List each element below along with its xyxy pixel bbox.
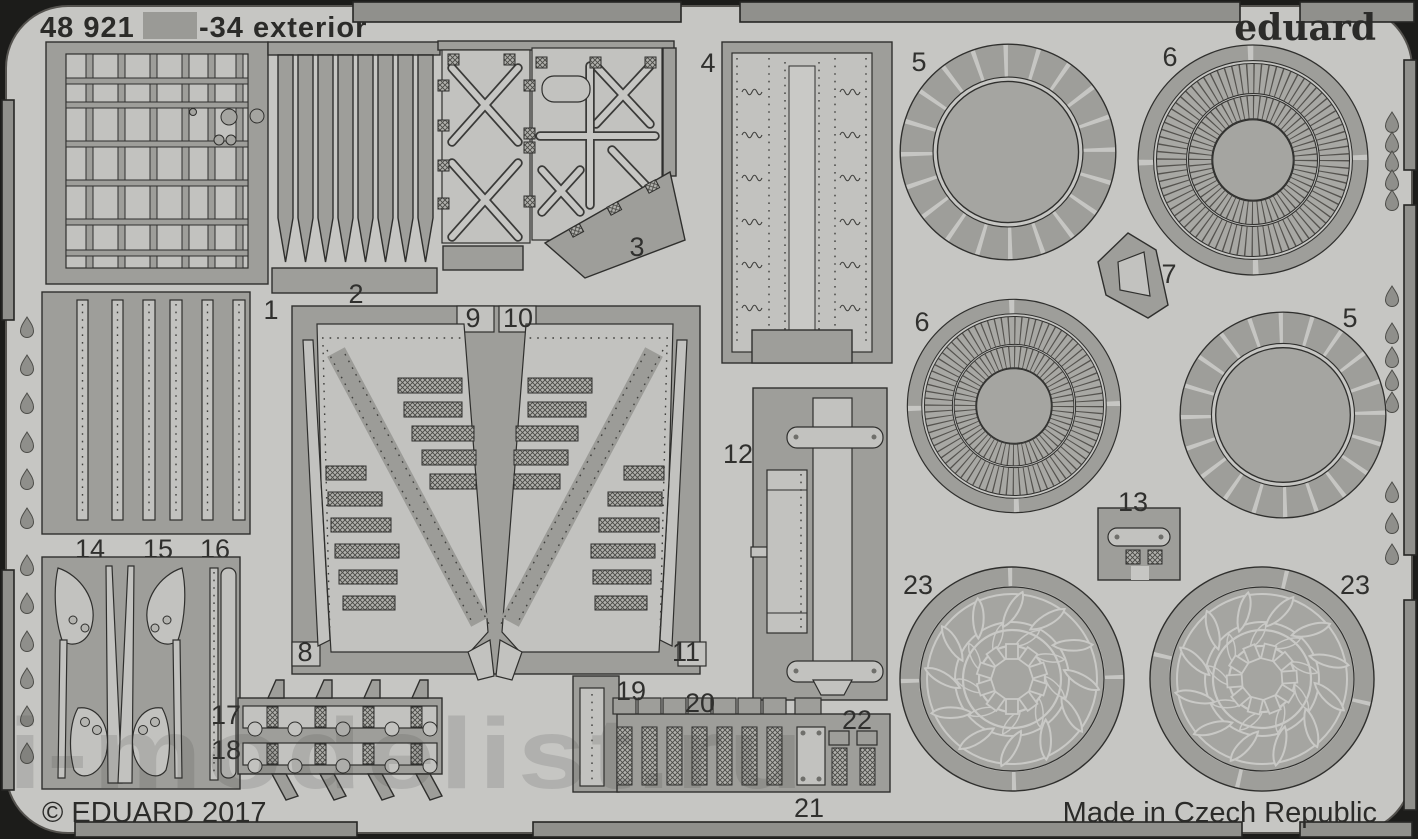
part-number-label: 11 <box>672 637 700 667</box>
part-number-label: 22 <box>842 705 872 735</box>
part-1-grille-panel: 1 <box>46 42 279 325</box>
part-number-label: 5 <box>911 47 926 77</box>
edge-tab <box>2 100 14 320</box>
edge-tab <box>1404 60 1416 170</box>
part-number-label: 2 <box>348 279 363 309</box>
catalog-number: 48 921 <box>40 12 135 44</box>
part-number-label: 4 <box>700 48 715 78</box>
part-number-label: 13 <box>1118 487 1148 517</box>
product-name: -34 exterior <box>199 12 367 44</box>
part-9-panel <box>317 324 494 680</box>
part-number-label: 5 <box>1342 303 1357 333</box>
part-6-turbine-ring-top: 6 <box>1138 42 1368 275</box>
part-number-label: 9 <box>465 303 480 333</box>
eduard-logo: eduard <box>1234 7 1376 49</box>
edge-tab <box>1404 205 1416 555</box>
part-number-label: 6 <box>914 307 929 337</box>
teardrop-holes-right <box>1386 112 1399 565</box>
part-number-label: 7 <box>1161 259 1176 289</box>
edge-tab <box>740 2 1240 22</box>
parts-14-15-16-strips: 14 15 16 <box>42 292 250 564</box>
photo-etch-fret-photo: 1 14 15 16 <box>0 0 1418 839</box>
lower-wing <box>787 661 883 682</box>
part-number-label: 10 <box>503 303 533 333</box>
edge-tab <box>1404 600 1416 810</box>
part-3-x-brace-doors: 3 <box>438 41 685 278</box>
upper-wing <box>787 427 883 448</box>
part-number-label: 3 <box>629 232 644 262</box>
part-number-label: 6 <box>1162 42 1177 72</box>
part-number-label: 23 <box>1340 570 1370 600</box>
part-5-nozzle-ring-top: 5 <box>900 44 1116 260</box>
made-in-text: Made in Czech Republic <box>1063 797 1377 829</box>
part-4-riveted-panel: 4 <box>700 42 892 363</box>
watermark-text: i-modelist.ru <box>8 698 808 810</box>
part-23-wheel-left: 23 <box>900 567 1124 791</box>
parts-8-9-10-11-speedbrakes: 9 10 8 11 <box>292 303 706 680</box>
part-6-turbine-ring-lower: 6 <box>907 299 1120 512</box>
edge-tab <box>353 2 681 22</box>
part-number-label: 12 <box>723 439 753 469</box>
part-number-label: 8 <box>297 637 312 667</box>
copyright-text: © EDUARD 2017 <box>42 797 266 829</box>
fret-sheet-svg: 1 14 15 16 <box>0 0 1418 839</box>
latch-cutout <box>542 76 590 102</box>
censored-text-patch <box>143 12 197 39</box>
part-number-label: 23 <box>903 570 933 600</box>
part-number-label: 1 <box>263 295 278 325</box>
part-10-panel <box>496 324 673 680</box>
